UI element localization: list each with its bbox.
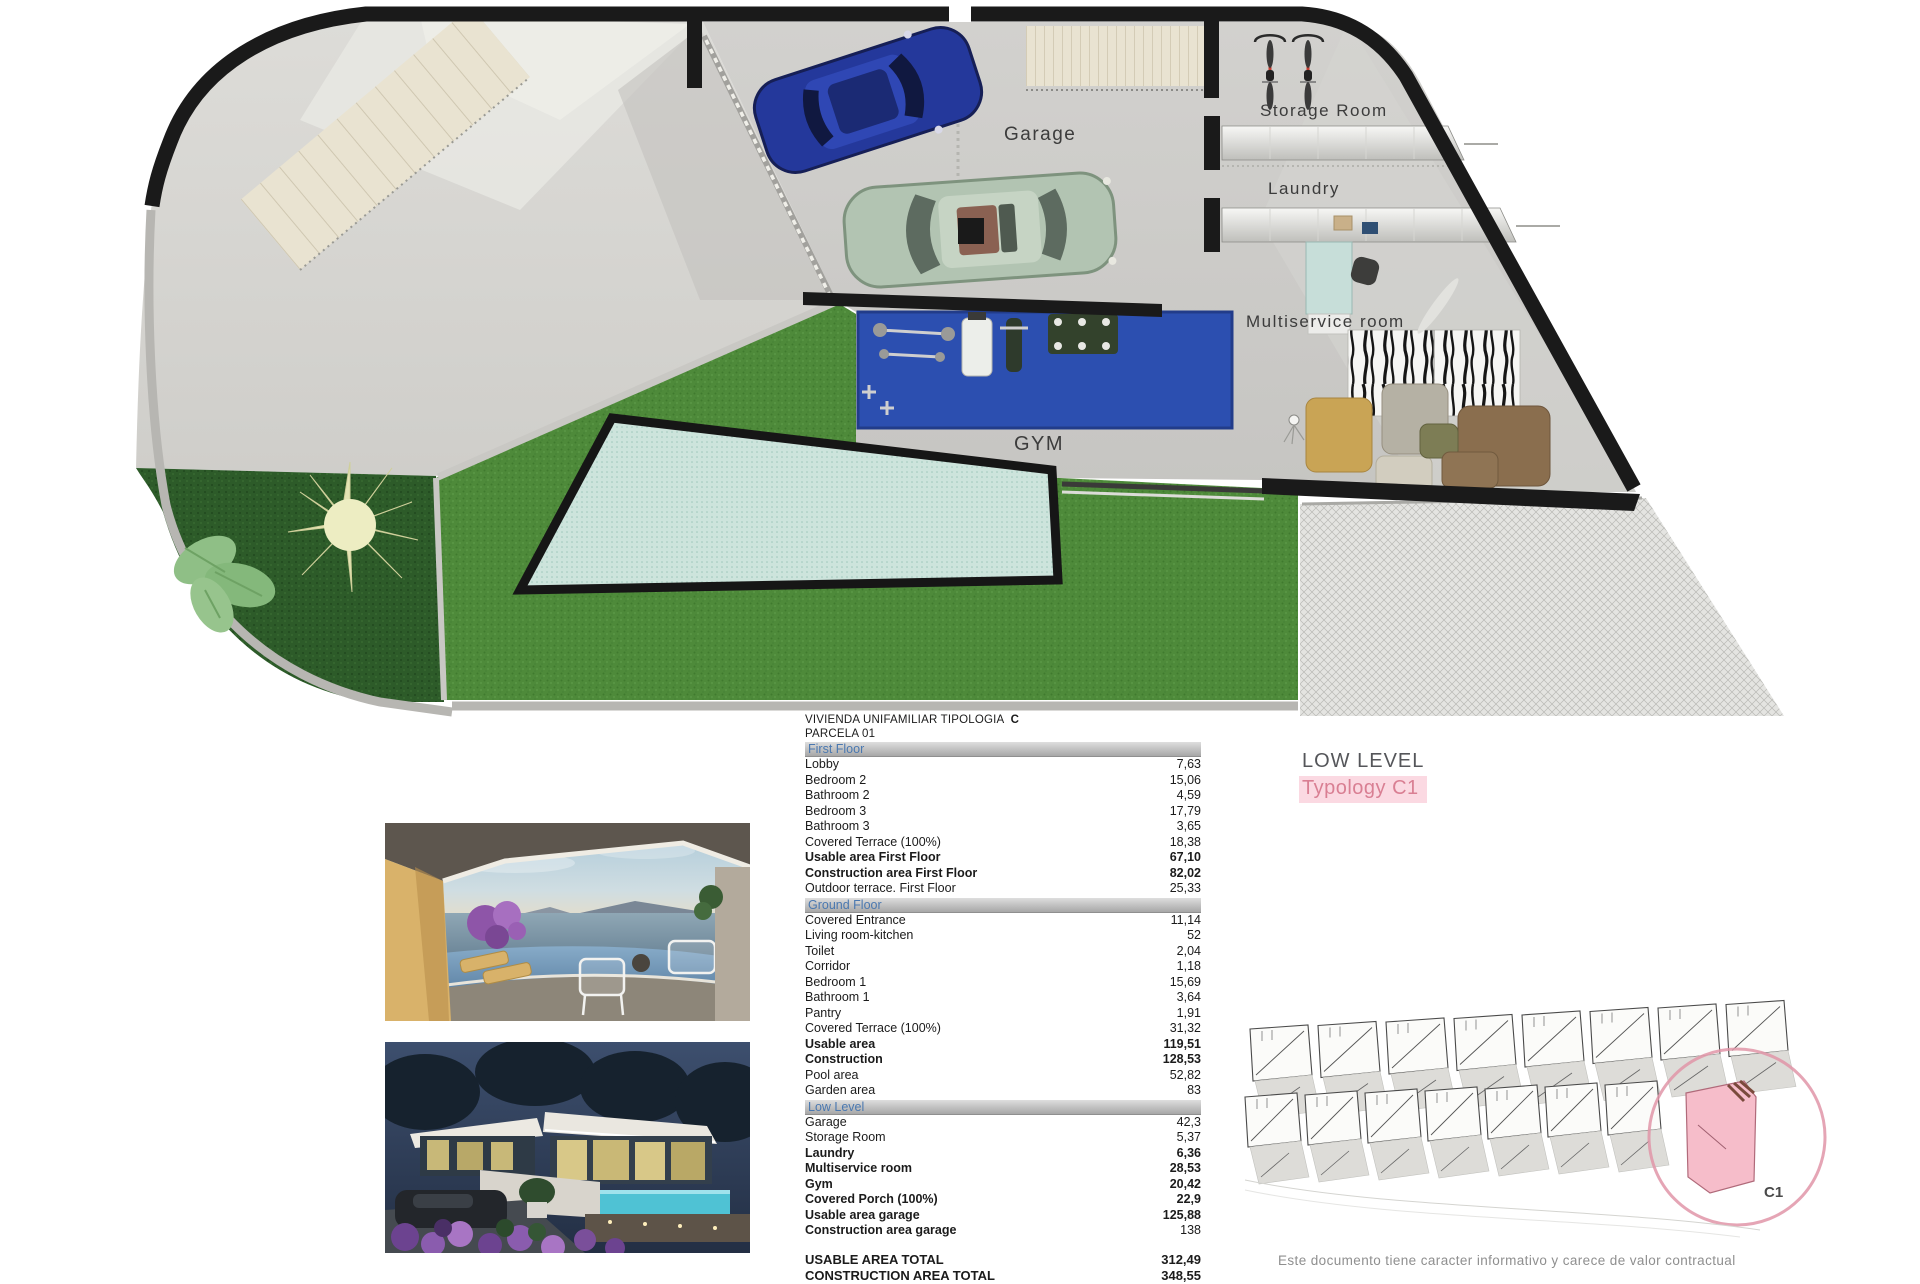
- table-total-row: USABLE AREA TOTAL312,49: [805, 1252, 1201, 1268]
- table-row: Usable area garage125,88: [805, 1208, 1201, 1224]
- floor-plan: Garage Storage Room Laundry Multiservice…: [0, 0, 1920, 745]
- site-plan: C1: [1240, 985, 1860, 1245]
- table-row: Bedroom 317,79: [805, 804, 1201, 820]
- table-row: Covered Porch (100%)22,9: [805, 1192, 1201, 1208]
- table-row: Bedroom 115,69: [805, 975, 1201, 991]
- table-total-row: CONSTRUCTION AREA TOTAL348,55: [805, 1268, 1201, 1284]
- table-subtitle: PARCELA 01: [805, 727, 1201, 741]
- label-storage-room: Storage Room: [1260, 101, 1388, 120]
- table-row: Garden area83: [805, 1083, 1201, 1099]
- table-totals: USABLE AREA TOTAL312,49CONSTRUCTION AREA…: [805, 1252, 1201, 1284]
- photo-villa-exterior: [385, 1042, 750, 1258]
- table-row: Outdoor terrace. First Floor25,33: [805, 881, 1201, 897]
- label-laundry: Laundry: [1268, 179, 1340, 198]
- car-silhouette: [395, 1190, 507, 1228]
- table-row: Lobby7,63: [805, 757, 1201, 773]
- table-row: Bedroom 215,06: [805, 773, 1201, 789]
- table-row: Multiservice room28,53: [805, 1161, 1201, 1177]
- table-row: Usable area First Floor67,10: [805, 850, 1201, 866]
- label-garage: Garage: [1004, 124, 1076, 145]
- disclaimer-text: Este documento tiene caracter informativ…: [1278, 1253, 1736, 1268]
- gym-area: [858, 312, 1232, 428]
- table-row: Bathroom 33,65: [805, 819, 1201, 835]
- site-plan-unit-label: C1: [1764, 1184, 1783, 1201]
- table-row: Bathroom 24,59: [805, 788, 1201, 804]
- table-row: Construction area garage138: [805, 1223, 1201, 1239]
- photo-terrace-view: [385, 823, 750, 1026]
- stairs-garage: [1026, 26, 1212, 90]
- section-header: Low Level: [805, 1100, 1201, 1115]
- label-multiservice-room: Multiservice room: [1246, 312, 1405, 331]
- area-table: VIVIENDA UNIFAMILIAR TIPOLOGIA C PARCELA…: [805, 713, 1201, 1284]
- level-title: LOW LEVEL: [1302, 750, 1424, 773]
- table-row: Corridor1,18: [805, 959, 1201, 975]
- floor-lamp: [1289, 415, 1299, 425]
- table-row: Laundry6,36: [805, 1146, 1201, 1162]
- table-row: Bathroom 13,64: [805, 990, 1201, 1006]
- area-table-body: First FloorLobby7,63Bedroom 215,06Bathro…: [805, 742, 1201, 1239]
- table-row: Pantry1,91: [805, 1006, 1201, 1022]
- table-row: Living room-kitchen52: [805, 928, 1201, 944]
- table-row: Garage42,3: [805, 1115, 1201, 1131]
- table-title: VIVIENDA UNIFAMILIAR TIPOLOGIA C: [805, 713, 1201, 727]
- table-row: Pool area52,82: [805, 1068, 1201, 1084]
- table-row: Gym20,42: [805, 1177, 1201, 1193]
- terrain-contours: [1245, 1180, 1760, 1237]
- section-header: First Floor: [805, 742, 1201, 757]
- table-row: Covered Entrance11,14: [805, 913, 1201, 929]
- table-row: Toilet2,04: [805, 944, 1201, 960]
- table-row: Covered Terrace (100%)18,38: [805, 835, 1201, 851]
- table-row: Usable area119,51: [805, 1037, 1201, 1053]
- hatched-driveway: [1300, 498, 1784, 716]
- table-row: Covered Terrace (100%)31,32: [805, 1021, 1201, 1037]
- level-typology: Typology C1: [1299, 776, 1427, 803]
- floor-plan-drawing: Garage Storage Room Laundry Multiservice…: [0, 0, 1920, 745]
- table-row: Storage Room5,37: [805, 1130, 1201, 1146]
- section-header: Ground Floor: [805, 898, 1201, 913]
- table-row: Construction128,53: [805, 1052, 1201, 1068]
- label-gym: GYM: [1014, 433, 1064, 455]
- table-row: Construction area First Floor82,02: [805, 866, 1201, 882]
